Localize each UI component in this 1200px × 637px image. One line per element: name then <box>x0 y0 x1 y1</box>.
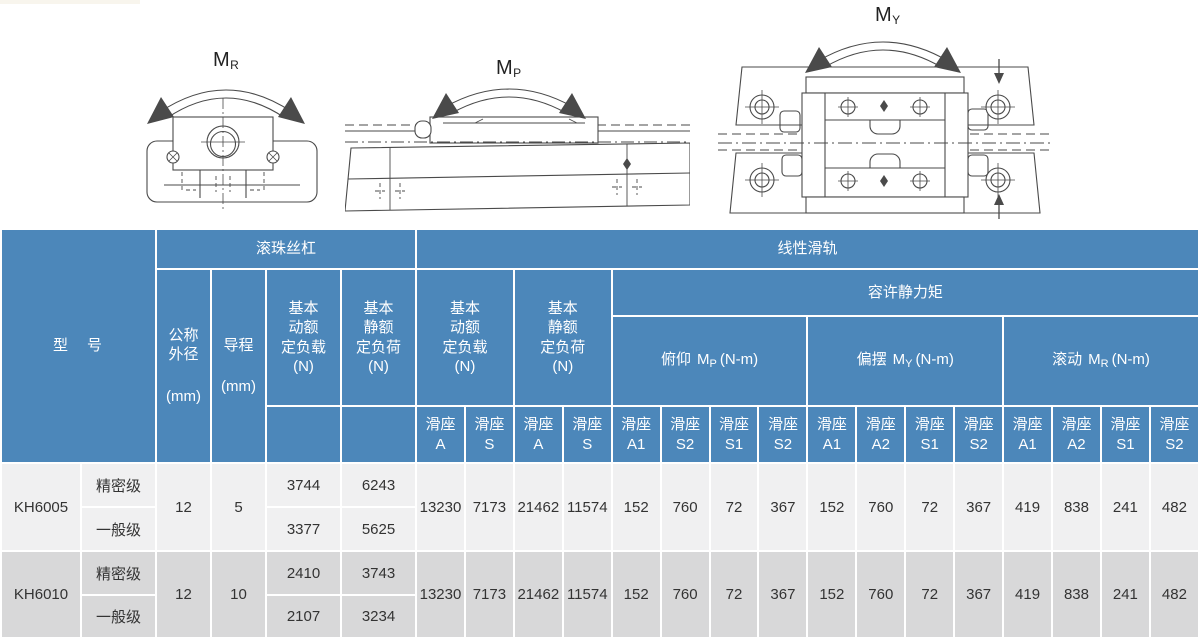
yawing-moment-drawing <box>718 3 1050 225</box>
cell-value: 482 <box>1150 551 1199 637</box>
col-header-slider-a1: 滑座A1 <box>807 406 856 463</box>
diagram-pitching-moment: MP <box>345 55 690 215</box>
cell-bs-dynamic: 3744 <box>266 463 341 507</box>
cell-value: 482 <box>1150 463 1199 551</box>
diagram-rolling-moment: MR <box>130 40 335 230</box>
cell-bs-static: 6243 <box>341 463 416 507</box>
col-title: 公称 外径 <box>157 326 210 365</box>
cell-value: 21462 <box>514 551 563 637</box>
moment-unit: (N-m) <box>720 351 758 368</box>
cell-value: 419 <box>1003 463 1052 551</box>
moment-subscript: Y <box>905 358 912 370</box>
cell-value: 11574 <box>563 463 612 551</box>
col-group-yaw-moment: 偏摆MY(N-m) <box>807 316 1003 406</box>
moment-name: 偏摆 <box>857 351 887 368</box>
label-mr: MR <box>213 50 239 71</box>
cell-model: KH6005 <box>1 463 81 551</box>
cell-value: 241 <box>1101 551 1150 637</box>
cell-value: 838 <box>1052 463 1101 551</box>
cell-value: 760 <box>856 551 905 637</box>
moment-subscript: P <box>709 358 716 370</box>
cell-value: 72 <box>905 551 954 637</box>
col-header-slider-s1: 滑座S1 <box>905 406 954 463</box>
moment-name: 俯仰 <box>661 351 691 368</box>
cell-bs-dynamic: 2107 <box>266 595 341 637</box>
cell-grade: 精密级 <box>81 551 156 595</box>
moment-symbol: M <box>496 57 513 79</box>
col-header-bs-dynamic-load: 基本 动额 定负载 (N) <box>266 269 341 406</box>
cell-value: 367 <box>758 463 807 551</box>
col-header-model: 型 号 <box>1 229 156 463</box>
cell-bs-static: 5625 <box>341 507 416 551</box>
arrow-left-icon <box>432 93 459 119</box>
cell-value: 152 <box>612 463 661 551</box>
arrow-left-icon <box>805 47 832 73</box>
cell-value: 367 <box>954 463 1003 551</box>
cell-lead: 5 <box>211 463 266 551</box>
arrow-up-icon <box>994 194 1004 205</box>
arrow-right-icon <box>559 93 586 119</box>
specification-table: 型 号 滚珠丝杠 线性滑轨 公称 外径 (mm) 导程 (mm) 基本 动额 定… <box>0 228 1200 637</box>
col-header-slider-a1: 滑座A1 <box>1003 406 1052 463</box>
label-my: MY <box>875 5 901 26</box>
cell-value: 419 <box>1003 551 1052 637</box>
cell-value: 72 <box>710 463 759 551</box>
cell-value: 11574 <box>563 551 612 637</box>
cell-value: 760 <box>661 551 710 637</box>
col-header-slider-s2: 滑座S2 <box>1150 406 1199 463</box>
cell-od: 12 <box>156 463 211 551</box>
cell-od: 12 <box>156 551 211 637</box>
col-header-slider-s: 滑座S <box>465 406 514 463</box>
cell-lead: 10 <box>211 551 266 637</box>
cell-value: 13230 <box>416 463 465 551</box>
moment-diagram-strip: MR <box>0 0 1200 228</box>
col-header-slider-s2: 滑座S2 <box>661 406 710 463</box>
cell-bs-static: 3743 <box>341 551 416 595</box>
arrow-right-icon <box>278 97 305 124</box>
col-group-allowable-static-moment: 容许静力矩 <box>612 269 1199 316</box>
col-header-slider-a1: 滑座A1 <box>612 406 661 463</box>
col-header-slider-a2: 滑座A2 <box>856 406 905 463</box>
col-header-slider-s: 滑座S <box>563 406 612 463</box>
cell-value: 72 <box>905 463 954 551</box>
col-header-slider-s2: 滑座S2 <box>758 406 807 463</box>
cell-bs-static: 3234 <box>341 595 416 637</box>
cell-bs-dynamic: 3377 <box>266 507 341 551</box>
cell-value: 21462 <box>514 463 563 551</box>
cell-value: 241 <box>1101 463 1150 551</box>
moment-subscript: R <box>1101 358 1109 370</box>
cell-value: 367 <box>758 551 807 637</box>
col-header-bs-static-load: 基本 静额 定负荷 (N) <box>341 269 416 406</box>
col-group-linear-rail: 线性滑轨 <box>416 229 1199 269</box>
cell-value: 760 <box>661 463 710 551</box>
col-unit: (mm) <box>157 387 210 407</box>
moment-symbol: M <box>697 351 710 368</box>
col-group-ball-screw: 滚珠丝杠 <box>156 229 416 269</box>
moment-symbol: M <box>1088 351 1101 368</box>
diagram-yawing-moment: MY <box>718 3 1050 225</box>
col-unit: (mm) <box>212 377 265 397</box>
arrow-left-icon <box>147 97 174 124</box>
col-header-slider-a: 滑座A <box>416 406 465 463</box>
moment-symbol: M <box>875 4 892 26</box>
cell-value: 7173 <box>465 463 514 551</box>
moment-unit: (N-m) <box>1112 351 1150 368</box>
arrow-down-icon <box>994 73 1004 84</box>
moment-subscript: R <box>230 58 239 72</box>
cell-value: 152 <box>612 551 661 637</box>
col-group-pitch-moment: 俯仰MP(N-m) <box>612 316 808 406</box>
col-header-slider-s1: 滑座S1 <box>1101 406 1150 463</box>
arrow-right-icon <box>934 47 961 73</box>
col-header-lead: 导程 (mm) <box>211 269 266 463</box>
cell-value: 13230 <box>416 551 465 637</box>
moment-subscript: P <box>513 66 522 80</box>
table-row: KH6010 精密级 12 10 2410 3743 13230 7173 21… <box>1 551 1199 595</box>
cell-value: 367 <box>954 551 1003 637</box>
col-header-slider-s2: 滑座S2 <box>954 406 1003 463</box>
col-header-slider-a: 滑座A <box>514 406 563 463</box>
col-header-slider-a2: 滑座A2 <box>1052 406 1101 463</box>
cell-value: 152 <box>807 551 856 637</box>
col-title: 导程 <box>212 336 265 356</box>
moment-symbol: M <box>893 351 906 368</box>
col-header-lr-static-load: 基本 静额 定负荷 (N) <box>514 269 612 406</box>
col-group-roll-moment: 滚动MR(N-m) <box>1003 316 1199 406</box>
cell-bs-dynamic: 2410 <box>266 551 341 595</box>
label-mp: MP <box>496 58 522 79</box>
moment-unit: (N-m) <box>916 351 954 368</box>
empty-cell <box>266 406 341 463</box>
empty-cell <box>341 406 416 463</box>
col-header-lr-dynamic-load: 基本 动额 定负载 (N) <box>416 269 514 406</box>
moment-subscript: Y <box>892 13 901 27</box>
cell-value: 152 <box>807 463 856 551</box>
col-header-nominal-od: 公称 外径 (mm) <box>156 269 211 463</box>
catalog-page: MR <box>0 0 1200 637</box>
cell-value: 838 <box>1052 551 1101 637</box>
cell-model: KH6010 <box>1 551 81 637</box>
cell-grade: 一般级 <box>81 595 156 637</box>
cell-grade: 一般级 <box>81 507 156 551</box>
cell-value: 72 <box>710 551 759 637</box>
col-header-slider-s1: 滑座S1 <box>710 406 759 463</box>
cell-grade: 精密级 <box>81 463 156 507</box>
cell-value: 760 <box>856 463 905 551</box>
moment-name: 滚动 <box>1052 351 1082 368</box>
cell-value: 7173 <box>465 551 514 637</box>
moment-symbol: M <box>213 49 230 71</box>
table-row: KH6005 精密级 12 5 3744 6243 13230 7173 214… <box>1 463 1199 507</box>
